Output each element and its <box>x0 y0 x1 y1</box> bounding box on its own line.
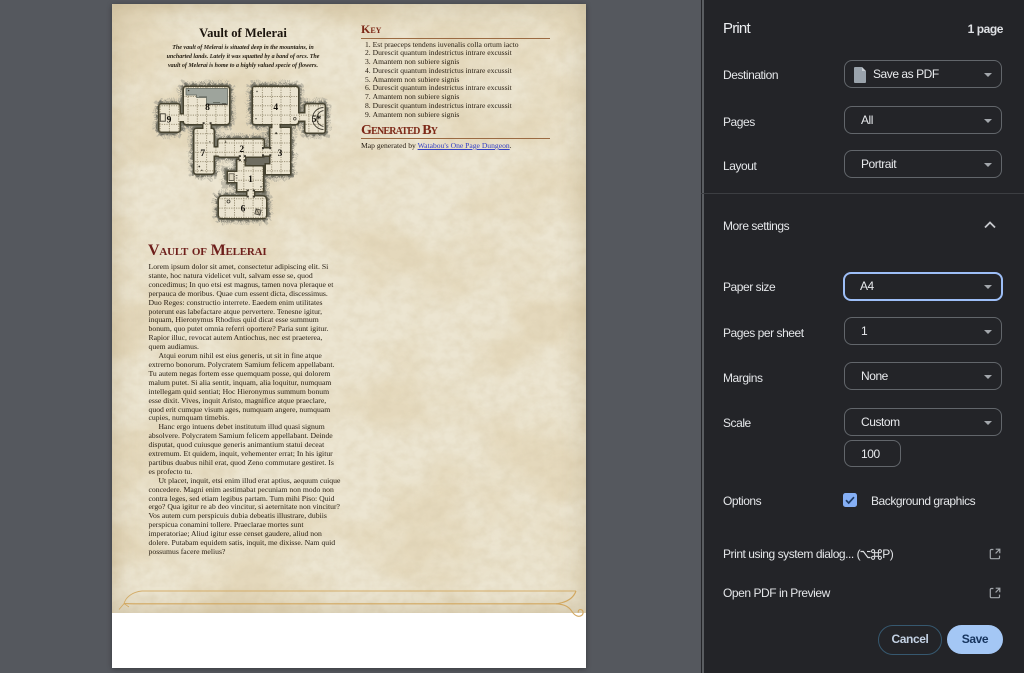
svg-text:9: 9 <box>167 116 172 126</box>
svg-text:6: 6 <box>241 205 246 215</box>
svg-text:4: 4 <box>273 103 278 113</box>
svg-text:8: 8 <box>205 103 210 113</box>
svg-text:2: 2 <box>239 145 244 155</box>
svg-text:3: 3 <box>278 149 283 159</box>
svg-text:7: 7 <box>200 149 205 159</box>
svg-text:5*: 5* <box>312 115 322 125</box>
svg-text:1: 1 <box>248 175 253 185</box>
